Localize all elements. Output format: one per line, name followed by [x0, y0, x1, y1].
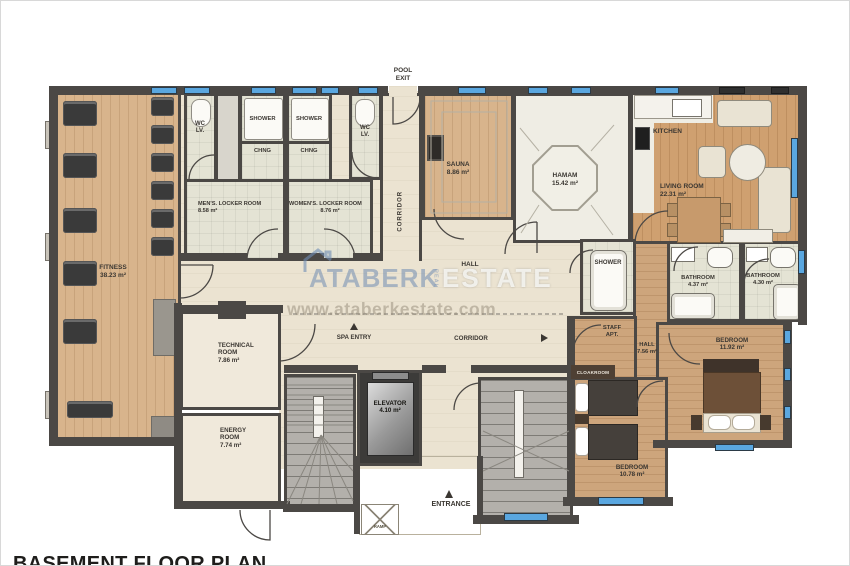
energy-label: ENERGYROOM7.74 m² [220, 427, 280, 449]
sauna-bench-2 [442, 112, 496, 202]
corridor-h-label: CORRIDOR [441, 335, 501, 342]
door-arc-living [635, 211, 668, 244]
stairs-spa-steps [287, 385, 353, 425]
window-right-living [791, 138, 798, 198]
cloakroom-wardrobe: CLOAKROOM [571, 365, 615, 379]
door-arc-bedroom1 [669, 333, 700, 364]
door-arc-bedroom2 [637, 381, 663, 407]
door-arc-bathroom1 [674, 247, 698, 271]
staff-apt-label: STAFFAPT. [592, 325, 632, 339]
window-top-dark-2 [771, 87, 789, 94]
stairs-main-cross [483, 431, 569, 471]
window-right-bed1-a [784, 330, 791, 344]
hall-main-label: HALL [450, 261, 490, 269]
page-title: BASEMENT FLOOR PLAN [13, 553, 266, 566]
stairs-spa-fan [287, 435, 353, 504]
door-arc-fitness [180, 265, 213, 298]
wc1-label: WCLV. [185, 121, 215, 135]
corridor-arrow-icon [541, 334, 548, 342]
womens-locker-label: WOMEN'S. LOCKER ROOM8.76 m² [289, 201, 371, 214]
floor-plan-canvas: CLOAKROOM [0, 0, 850, 566]
ramp-label: RAMP [365, 524, 395, 529]
chng2-label: CHNG [288, 148, 330, 155]
window-bottom-bed2 [598, 497, 644, 505]
bedroom2-label: BEDROOM10.78 m² [607, 464, 657, 479]
wc2-label: WCLV. [350, 125, 380, 139]
cloakroom-label: CLOAKROOM [577, 370, 609, 375]
shower2-label: SHOWER [288, 116, 330, 123]
window-top-6 [358, 87, 378, 94]
sauna-label: SAUNA8.86 m² [433, 161, 483, 177]
window-top-8 [528, 87, 548, 94]
door-arc-wc1 [189, 155, 214, 180]
shower1-label: SHOWER [241, 116, 284, 123]
door-arc-mens-locker [247, 229, 278, 260]
entrance-arrow-icon [445, 490, 453, 498]
chng1-label: CHNG [241, 148, 284, 155]
mens-locker-label: MEN'S. LOCKER ROOM8.58 m² [198, 201, 278, 214]
door-arc-hamam [505, 222, 537, 254]
staff-hall-label: HALL7.56 m² [627, 342, 667, 356]
technical-label: TECHNICALROOM7.86 m² [218, 342, 278, 364]
window-top-1 [151, 87, 177, 94]
door-arc-technical [278, 324, 315, 361]
window-right-bath2 [798, 250, 805, 274]
window-top-5 [321, 87, 339, 94]
kitchen-label: KITCHEN [653, 128, 693, 136]
window-top-4 [292, 87, 317, 94]
spa-entry-arrow-icon [350, 323, 358, 330]
elevator-label: ELEVATOR4.10 m² [365, 400, 415, 415]
window-top-10 [655, 87, 679, 94]
corridor-v-label: CORRIDOR [397, 192, 404, 232]
door-arc-womens-locker [324, 229, 355, 260]
bedroom1-label: BEDROOM11.92 m² [707, 337, 757, 352]
entrance-label: ENTRANCE [421, 501, 481, 509]
window-top-9 [571, 87, 591, 94]
window-right-bed1-b [784, 368, 791, 381]
window-top-7 [458, 87, 486, 94]
spa-entry-label: SPA ENTRY [324, 334, 384, 341]
door-arc-stairhall [454, 383, 481, 410]
shower-mid-label: SHOWER [586, 260, 630, 267]
fitness-label: FITNESS38.23 m² [83, 264, 143, 280]
pool-exit-label: POOLEXIT [385, 67, 421, 83]
door-arc-wc2 [352, 152, 378, 178]
window-top-dark-1 [719, 87, 745, 94]
window-bottom-stairs [504, 513, 548, 521]
living-label: LIVING ROOM22.31 m² [660, 183, 710, 199]
bathroom2-label: BATHROOM4.30 m² [738, 273, 788, 287]
hamam-label: HAMAM15.42 m² [537, 172, 593, 188]
bathroom1-label: BATHROOM4.37 m² [673, 275, 723, 289]
window-top-3 [251, 87, 276, 94]
door-arc-energy-exterior [240, 510, 270, 540]
window-bottom-bed1 [715, 444, 754, 451]
door-arc-pool-exit [393, 97, 420, 124]
window-top-2 [184, 87, 210, 94]
window-right-bed1-c [784, 406, 791, 419]
